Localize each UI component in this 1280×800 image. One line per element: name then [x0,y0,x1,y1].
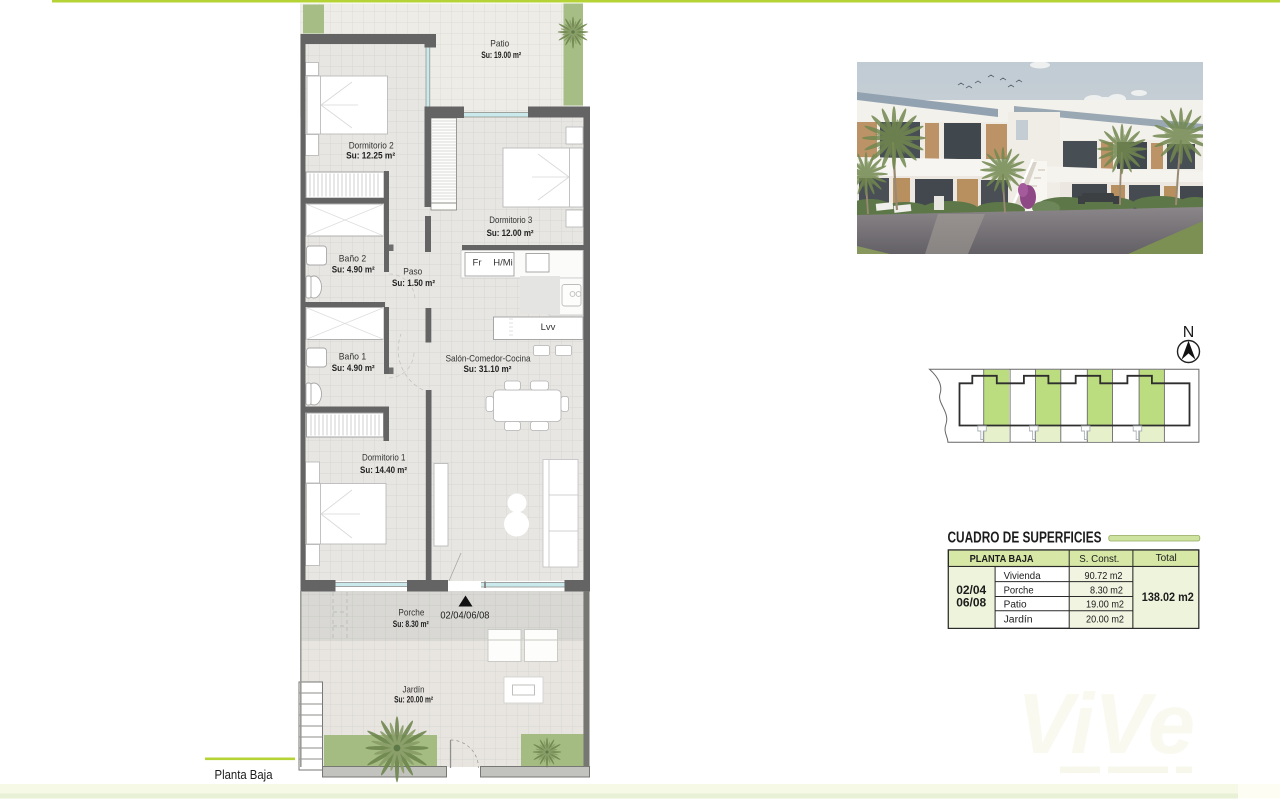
svg-text:Baño 2: Baño 2 [339,254,367,265]
svg-text:8.30 m2: 8.30 m2 [1090,585,1123,596]
svg-text:Dormitorio 1: Dormitorio 1 [362,453,406,464]
svg-text:Patio: Patio [1004,600,1027,611]
svg-text:PLANTA BAJA: PLANTA BAJA [970,553,1034,565]
svg-text:138.02 m2: 138.02 m2 [1142,592,1194,604]
svg-text:Su: 19.00 m²: Su: 19.00 m² [481,50,521,60]
svg-text:Su: 31.10 m²: Su: 31.10 m² [464,364,512,374]
svg-text:02/04/06/08: 02/04/06/08 [440,611,489,622]
svg-text:Su: 8.30 m²: Su: 8.30 m² [393,619,429,629]
svg-text:Jardín: Jardín [1004,615,1033,626]
svg-text:Baño 1: Baño 1 [339,352,367,363]
svg-text:Salón-Comedor-Cocina: Salón-Comedor-Cocina [446,354,532,365]
svg-text:06/08: 06/08 [956,595,986,609]
svg-text:Vivienda: Vivienda [1004,571,1041,582]
svg-text:Su: 1.50 m²: Su: 1.50 m² [392,278,435,288]
svg-text:Lvv: Lvv [541,322,556,333]
svg-text:Su: 4.90 m²: Su: 4.90 m² [332,363,375,373]
svg-text:Su: 12.25 m²: Su: 12.25 m² [346,151,395,161]
svg-text:Su: 4.90 m²: Su: 4.90 m² [332,265,375,275]
svg-text:20.00 m2: 20.00 m2 [1086,615,1124,626]
svg-text:Dormitorio 3: Dormitorio 3 [489,215,532,226]
svg-text:90.72 m2: 90.72 m2 [1085,571,1123,582]
svg-text:19.00 m2: 19.00 m2 [1086,600,1124,611]
svg-text:Total: Total [1156,553,1177,564]
svg-text:Su: 20.00 m²: Su: 20.00 m² [394,695,433,705]
svg-text:CUADRO DE SUPERFICIES: CUADRO DE SUPERFICIES [948,530,1102,547]
svg-text:N: N [1183,324,1195,341]
svg-text:Su: 12.00 m²: Su: 12.00 m² [487,228,534,238]
svg-text:Patio: Patio [490,39,509,50]
svg-text:Planta Baja: Planta Baja [215,768,273,782]
svg-text:Porche: Porche [1004,585,1034,596]
svg-text:Paso: Paso [403,267,422,278]
svg-text:ViVe: ViVe [1017,677,1195,772]
svg-text:Porche: Porche [398,608,424,619]
svg-text:S. Const.: S. Const. [1079,553,1119,565]
svg-text:H/Mi: H/Mi [493,258,513,269]
svg-text:Su: 14.40 m²: Su: 14.40 m² [360,465,407,475]
svg-text:Fr: Fr [473,258,482,269]
